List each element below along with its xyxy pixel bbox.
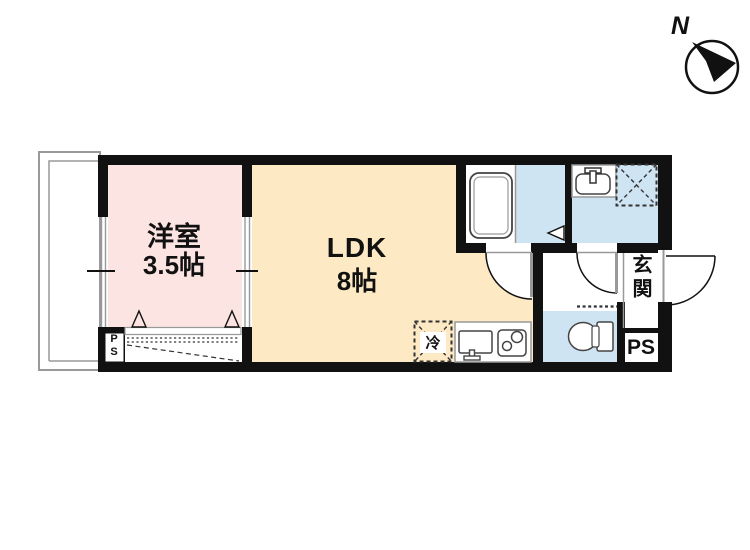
western-room-size: 3.5帖 <box>94 245 254 282</box>
balcony <box>39 152 100 370</box>
wall-top <box>98 155 672 165</box>
wall-hall-left <box>533 243 543 372</box>
entrance-label: 玄関 <box>626 254 655 346</box>
wall-bottom <box>98 362 672 372</box>
wall-left-upper <box>98 155 108 217</box>
refrigerator-label: 冷 <box>420 332 446 353</box>
ldk-room-size: 8帖 <box>277 261 437 298</box>
pipe-space-left-label: P S <box>104 333 124 359</box>
vanity-sink <box>572 165 616 197</box>
pipe-space-left-line2: S <box>104 346 124 359</box>
ldk-room-name: LDK <box>277 232 437 264</box>
compass <box>686 41 738 93</box>
toilet <box>569 322 614 351</box>
kitchen-counter <box>455 322 531 362</box>
wall-partition-lower <box>242 327 252 372</box>
floor-plan-page: 洋室 3.5帖 LDK 8帖 玄関 PS P S 冷 N <box>0 0 750 550</box>
stove <box>498 330 526 356</box>
pipe-space-right-label: PS <box>624 336 658 360</box>
pipe-space-left-line1: P <box>104 333 124 346</box>
wall-right-upper <box>658 155 672 250</box>
wall-bath-left <box>456 155 466 253</box>
wall-hall-top-a <box>456 243 486 253</box>
wall-bath-washroom <box>565 160 572 243</box>
compass-north-label: N <box>671 12 689 41</box>
entrance-door <box>658 250 715 305</box>
washroom-door-hall <box>577 253 617 294</box>
bathtub <box>470 173 512 238</box>
wall-partition-upper <box>242 155 252 217</box>
